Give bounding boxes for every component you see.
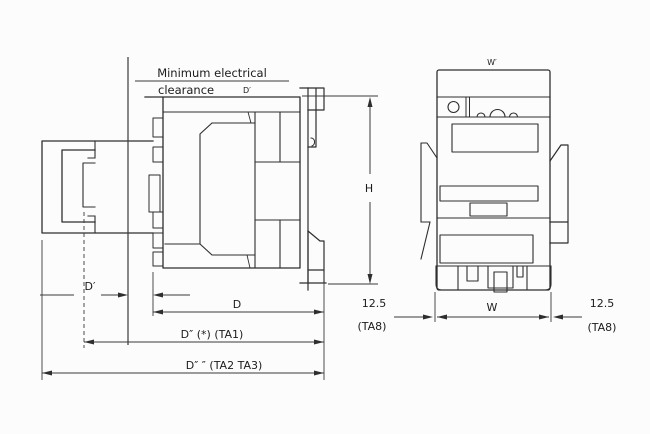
coil-terminal-screw bbox=[448, 102, 459, 113]
bracket-notches bbox=[88, 141, 95, 233]
dim-label-h: H bbox=[365, 182, 373, 195]
contactor-dimension-drawing: Minimum electrical clearance D′ D′ D D″ … bbox=[0, 0, 650, 434]
arrow-h-bottom bbox=[368, 274, 373, 284]
arrow-w-right bbox=[539, 315, 549, 320]
top-clip-spring-hook bbox=[311, 138, 315, 146]
dim-label-d-prime: D′ bbox=[85, 280, 96, 293]
arrow-w-left bbox=[437, 315, 447, 320]
dim-label-d-ta2-ta3: D″ ″ (TA2 TA3) bbox=[186, 359, 263, 372]
right-notch bbox=[517, 266, 523, 277]
bracket-outline bbox=[42, 141, 153, 233]
center-tab bbox=[470, 203, 507, 216]
center-foot bbox=[488, 266, 513, 292]
arrowheads bbox=[42, 97, 563, 376]
bottom-rail-clip bbox=[300, 231, 326, 283]
dim-label-125-right: 12.5 bbox=[590, 297, 615, 310]
arrow-dta1-left bbox=[84, 340, 94, 345]
bracket-inner-c bbox=[62, 150, 95, 222]
arrow-dta1-right bbox=[314, 340, 324, 345]
dim-label-ta8-right: (TA8) bbox=[588, 321, 617, 334]
front-top-bands bbox=[437, 97, 550, 117]
side-view-body bbox=[145, 97, 300, 268]
arrow-125-right bbox=[553, 315, 563, 320]
bracket-inner-notch bbox=[83, 163, 95, 207]
body-detail-ticks bbox=[247, 112, 251, 268]
right-foot bbox=[527, 266, 551, 290]
arrow-h-top bbox=[368, 97, 373, 107]
lower-plate bbox=[440, 235, 533, 263]
side-view-front-bracket bbox=[42, 141, 153, 233]
body-chamfered-block bbox=[165, 123, 255, 255]
dim-label-d-ta1: D″ (*) (TA1) bbox=[181, 328, 244, 341]
side-view bbox=[42, 88, 326, 290]
body-internal-divisions bbox=[255, 112, 300, 268]
pole-terminal-bumps bbox=[477, 110, 518, 118]
dim-label-125-left: 12.5 bbox=[362, 297, 387, 310]
labels: Minimum electrical clearance D′ D′ D D″ … bbox=[85, 58, 617, 372]
technical-drawing-page: Minimum electrical clearance D′ D′ D D″ … bbox=[0, 0, 650, 434]
note-line1: Minimum electrical bbox=[157, 66, 267, 80]
arrow-d-prime-left bbox=[153, 293, 163, 298]
arrow-d-left bbox=[153, 310, 163, 315]
arrow-d-prime-right bbox=[118, 293, 128, 298]
front-view bbox=[421, 70, 568, 292]
arrow-125-left bbox=[423, 315, 433, 320]
right-side-accessory-clip bbox=[550, 145, 568, 243]
arrow-dta23-left bbox=[42, 371, 52, 376]
dim-label-w: W bbox=[487, 301, 498, 314]
left-notch bbox=[467, 266, 478, 281]
body-left-terminal-strip bbox=[149, 118, 163, 266]
arrow-dta23-right bbox=[314, 371, 324, 376]
dim-label-w-top: W′ bbox=[487, 58, 497, 67]
mid-plate bbox=[440, 186, 538, 201]
dim-label-d: D bbox=[233, 298, 241, 311]
side-view-din-rail bbox=[300, 88, 326, 290]
left-foot bbox=[436, 266, 458, 290]
label-plate bbox=[452, 124, 538, 152]
terminal-divider-lines bbox=[466, 98, 470, 117]
dim-label-ta8-left: (TA8) bbox=[358, 320, 387, 333]
note-suffix: D′ bbox=[243, 86, 251, 95]
note-line2: clearance bbox=[158, 83, 214, 97]
left-side-accessory-clip bbox=[421, 143, 437, 259]
arrow-d-right bbox=[314, 310, 324, 315]
mounting-feet bbox=[436, 266, 551, 292]
